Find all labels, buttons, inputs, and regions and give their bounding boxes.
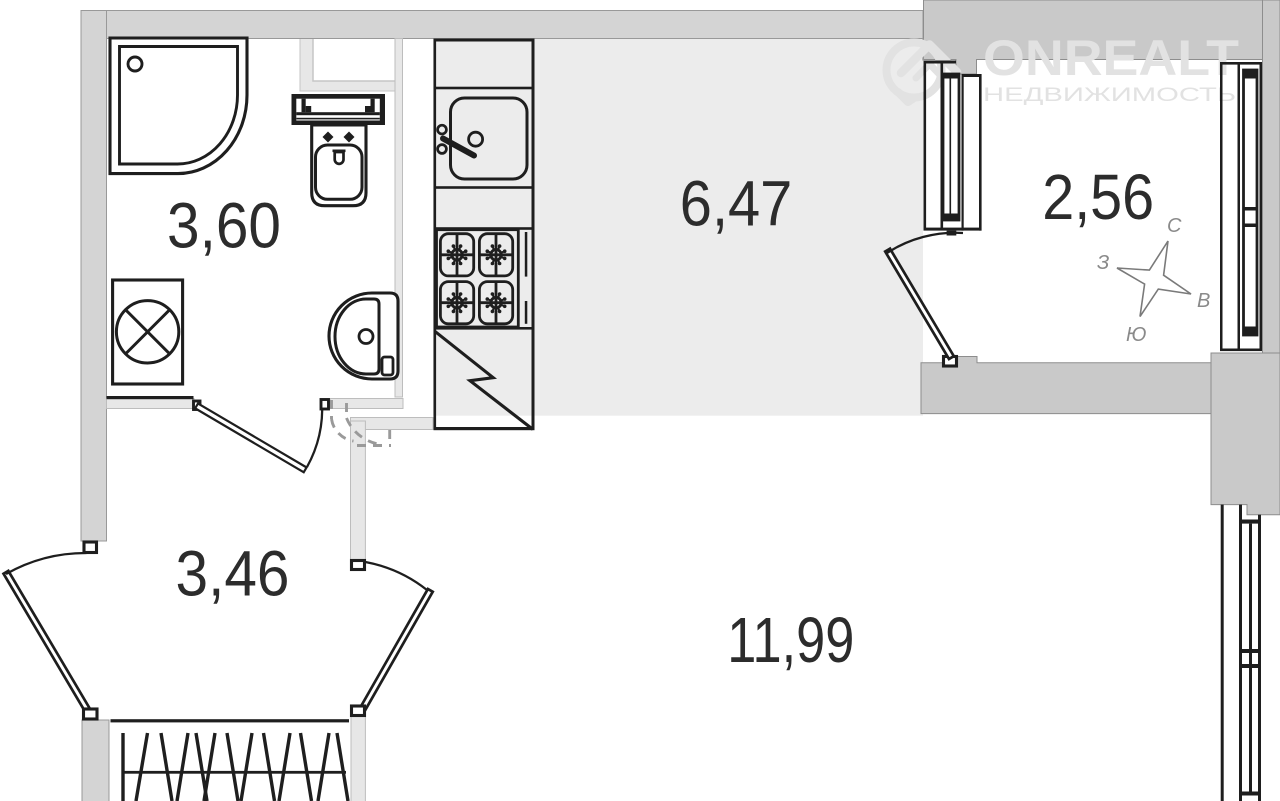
svg-text:6,47: 6,47 (680, 167, 793, 239)
svg-text:Ю: Ю (1126, 324, 1146, 346)
svg-text:В: В (1197, 290, 1210, 312)
svg-text:3,60: 3,60 (167, 189, 281, 261)
svg-text:11,99: 11,99 (727, 604, 854, 676)
svg-text:НЕДВИЖИМОСТЬ: НЕДВИЖИМОСТЬ (983, 85, 1236, 106)
svg-text:ONREALT: ONREALT (983, 30, 1239, 86)
svg-text:З: З (1097, 252, 1109, 274)
svg-text:3,46: 3,46 (176, 538, 290, 610)
svg-text:2,56: 2,56 (1042, 161, 1154, 233)
svg-text:С: С (1167, 215, 1182, 237)
